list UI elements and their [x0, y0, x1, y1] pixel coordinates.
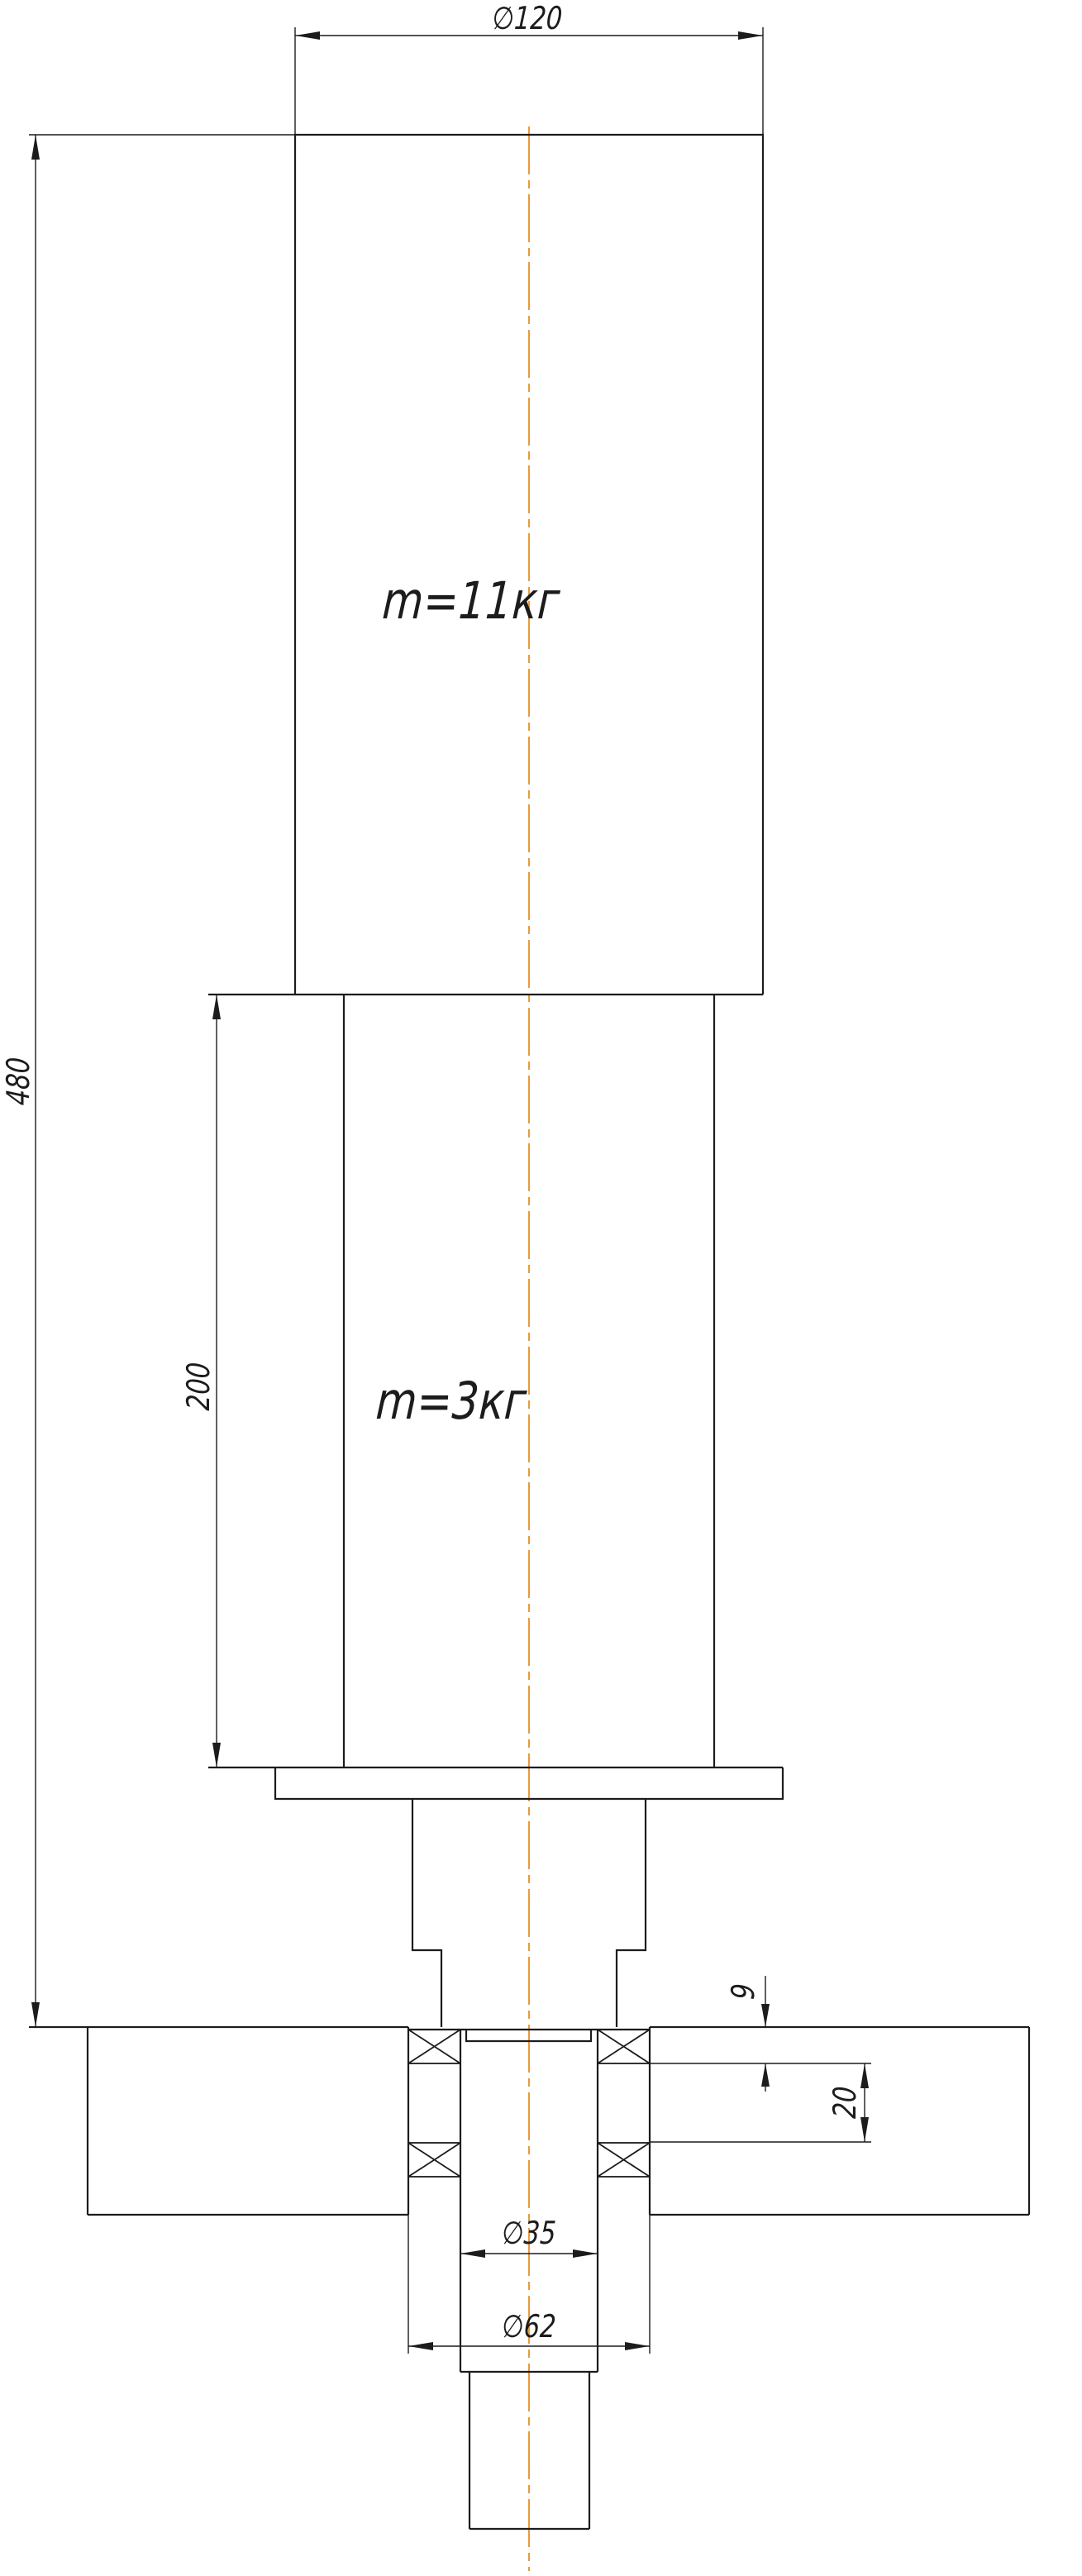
drawing-linework [0, 0, 1082, 2576]
housing-left-block [29, 2027, 408, 2215]
dimension-arrows [31, 31, 869, 2350]
dim-label-480: 480 [2, 1057, 34, 1106]
arrow-20-bottom [860, 2117, 869, 2142]
mass-label-top: m=11кг [381, 575, 561, 627]
bearing-lower-right [598, 2143, 650, 2177]
dim-label-dia62: ∅62 [501, 2311, 556, 2342]
arrow-480-bottom [31, 2002, 40, 2027]
arrow-dia62-right [625, 2342, 650, 2350]
arrow-dia120-right [738, 31, 763, 40]
dim-label-200: 200 [183, 1362, 214, 1411]
dim-label-dia120: ∅120 [492, 2, 564, 34]
arrow-9-bottom [761, 2063, 770, 2087]
dim-label-9: 9 [727, 1982, 759, 2000]
engineering-drawing: ∅120 480 200 m=11кг m=3кг ∅35 ∅62 9 20 [0, 0, 1082, 2576]
arrow-200-top [212, 995, 221, 1019]
dim-line-480 [29, 135, 295, 2027]
shaft-step-right [617, 1799, 646, 2027]
mass-label-mid: m=3кг [374, 1376, 527, 1427]
bearing-upper-right [598, 2030, 650, 2063]
dim-label-dia35: ∅35 [501, 2217, 556, 2249]
dimension-lines [29, 27, 871, 2354]
bearing-upper-left [408, 2030, 460, 2063]
arrow-200-bottom [212, 1743, 221, 1767]
arrow-dia120-left [295, 31, 320, 40]
arrow-dia62-left [408, 2342, 433, 2350]
arrow-dia35-right [573, 2249, 598, 2258]
dim-label-20: 20 [829, 2086, 860, 2120]
bearing-lower-left [408, 2143, 460, 2177]
housing-right-block [650, 2027, 1029, 2215]
arrow-9-top [761, 2004, 770, 2027]
shaft-step-left [412, 1799, 441, 2027]
dim-line-dia120 [295, 27, 763, 135]
arrow-20-top [860, 2063, 869, 2088]
arrow-dia35-left [460, 2249, 485, 2258]
arrow-480-top [31, 135, 40, 160]
